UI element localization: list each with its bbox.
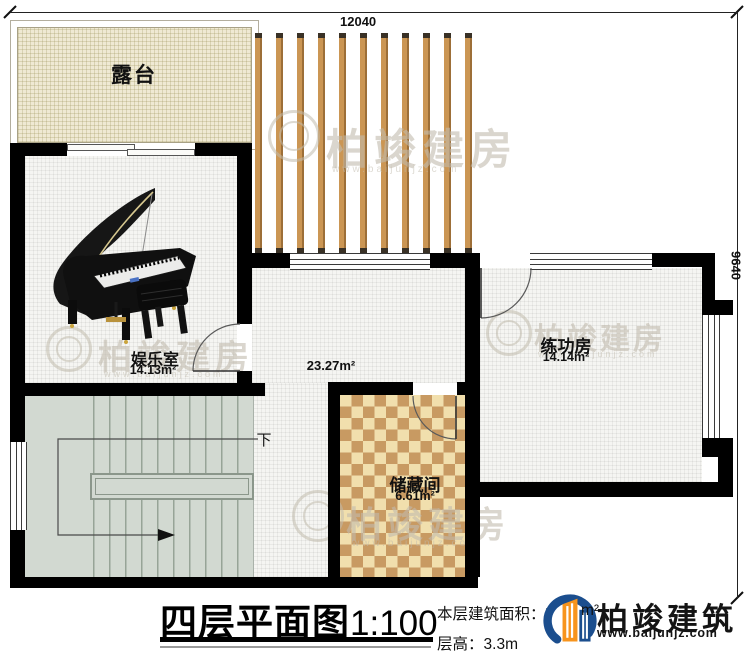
plan-overlay (0, 0, 750, 658)
title-underline-thin (160, 646, 431, 648)
logo-building-window (571, 603, 573, 638)
hall-area: 23.27m² (307, 358, 355, 373)
door-arc-storage (413, 396, 456, 439)
floor-plan-canvas: 12040 9640 露台 下 柏竣建房 www.baijunjz.com 柏竣… (0, 0, 750, 658)
logo-building-window (566, 606, 568, 638)
terrace-label: 露台 (111, 59, 157, 89)
floor-area-label: 本层建筑面积： (437, 606, 546, 623)
stair-direction-label: 下 (256, 429, 271, 450)
storage-room-area: 6.61m² (395, 489, 435, 503)
logo-building-orange (563, 599, 578, 642)
door-arc-practice (481, 268, 531, 318)
floor-height-value: 3.3m (484, 636, 518, 653)
company-website: www.baijunjz.com (597, 626, 718, 640)
stair-path-arrow (158, 529, 175, 541)
practice-room-area: 14.14m² (543, 350, 590, 364)
dimension-right-label: 9640 (729, 246, 744, 286)
dimension-top-label: 12040 (340, 14, 376, 29)
door-arc-entertainment (193, 324, 240, 371)
floor-height-label: 层高： (437, 636, 484, 653)
title-underline-thick (160, 637, 433, 642)
company-logo-icon (542, 590, 598, 652)
stair-path-line (58, 439, 258, 535)
floor-area-unit: m² (581, 602, 599, 620)
entertainment-room-area: 14.13m² (130, 363, 177, 377)
dimension-line-right (737, 12, 738, 598)
dimension-line-top (10, 12, 737, 13)
